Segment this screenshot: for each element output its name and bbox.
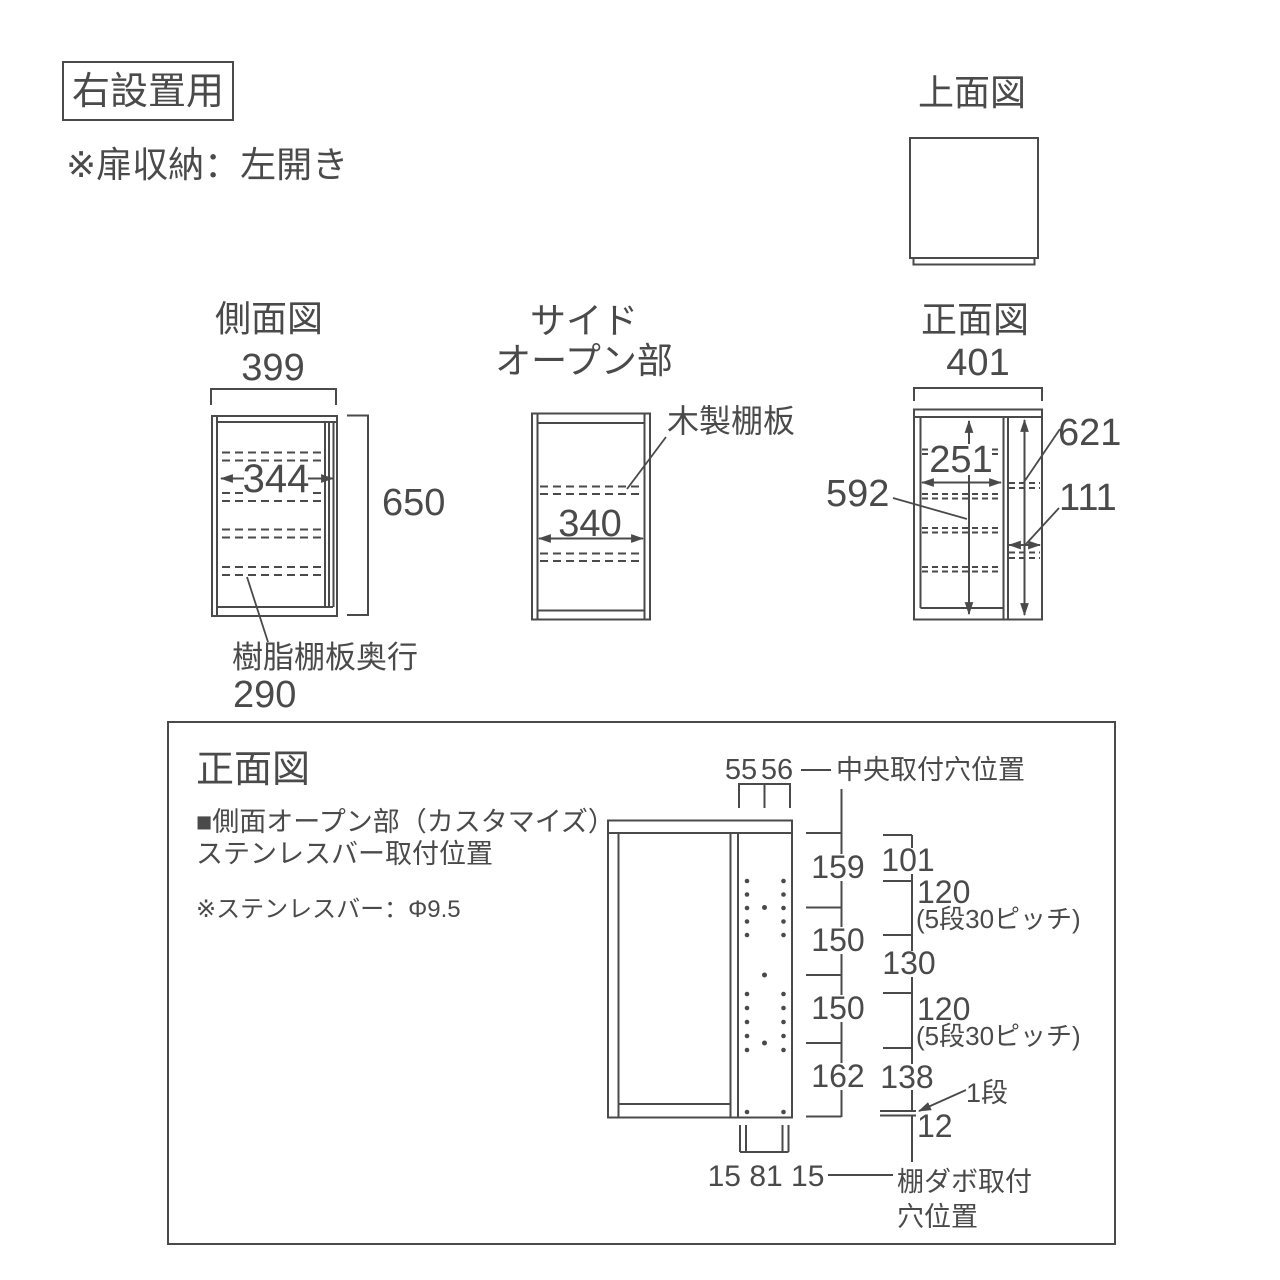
side-open-title-line2: オープン部: [495, 340, 673, 381]
left-chain-dim-3: 150: [811, 990, 864, 1026]
door-open-note: ※扉収納：左開き: [66, 144, 348, 185]
side-open-title-line1: サイド: [530, 300, 638, 341]
top-dims-bracket: [739, 784, 790, 808]
top-view-body: [910, 138, 1038, 258]
wood-shelf-label: 木製棚板: [667, 403, 795, 439]
side-view-panels: [217, 416, 337, 616]
right-chain-dim-4-note: (5段30ピッチ): [916, 1021, 1081, 1051]
right-dim-chain: [880, 835, 916, 1162]
detail-subtitle-line2: ステンレスバー取付位置: [196, 839, 493, 869]
top-dim-left: 55: [725, 754, 757, 786]
side-view: 側面図 399 344 650 樹脂棚板奥行 290: [211, 298, 445, 716]
main-width-dim: 251: [929, 439, 992, 481]
dabo-label-line1: 棚ダボ取付: [897, 1167, 1032, 1197]
side-width-dim: 111: [1059, 477, 1117, 519]
side-open-view: サイド オープン部 340 木製棚板: [495, 300, 795, 620]
detail-title: 正面図: [196, 749, 310, 791]
furniture-dimension-diagram: 右設置用 ※扉収納：左開き 上面図 側面図 399 344 650 樹脂棚板奥行…: [0, 0, 1280, 1280]
diagram-canvas: 右設置用 ※扉収納：左開き 上面図 側面図 399 344 650 樹脂棚板奥行…: [0, 0, 1280, 1280]
side-view-title: 側面図: [215, 298, 323, 339]
main-height-dim: 592: [826, 473, 889, 515]
side-height-dim: 621: [1058, 412, 1121, 454]
step-label: 1段: [966, 1078, 1008, 1108]
bottom-dims: 15 81 15: [708, 1160, 825, 1193]
side-view-height-bracket: [347, 416, 368, 616]
detail-cabinet-body: [608, 821, 792, 1118]
shelf-depth-label: 樹脂棚板奥行: [232, 640, 418, 675]
detail-subtitle-line1: ■側面オープン部（カスタマイズ）: [196, 807, 615, 837]
detail-panel: 正面図 ■側面オープン部（カスタマイズ） ステンレスバー取付位置 ※ステンレスバ…: [168, 722, 1115, 1244]
installation-side-badge: 右設置用: [72, 71, 224, 113]
detail-panel-frame: [168, 722, 1115, 1244]
right-chain-dim-2-note: (5段30ピッチ): [916, 904, 1081, 934]
right-chain-dim-1: 101: [881, 842, 934, 878]
side-view-body: [212, 416, 337, 616]
shelf-depth-value: 290: [233, 674, 296, 716]
front-view: 正面図 401 251 592 621 111: [826, 299, 1121, 620]
left-chain-dim-4: 162: [811, 1058, 864, 1094]
bottom-dims-bracket: [740, 1125, 789, 1152]
wood-shelf-leader: [627, 437, 666, 489]
top-dim-right: 56: [761, 754, 793, 786]
front-view-title: 正面図: [921, 299, 1029, 340]
dabo-label-line2: 穴位置: [897, 1202, 978, 1232]
top-left-legend: 右設置用 ※扉収納：左開き: [63, 62, 348, 185]
side-view-width-bracket: [211, 389, 336, 405]
bar-mount-holes: [745, 879, 786, 1053]
top-view-title: 上面図: [918, 72, 1026, 113]
main-height-leader: [893, 498, 967, 519]
right-chain-dim-6: 12: [917, 1108, 953, 1144]
top-view: 上面図: [910, 72, 1038, 265]
center-hole-label: 中央取付穴位置: [836, 755, 1025, 785]
shelf-depth-leader: [247, 577, 268, 642]
left-chain-dim-1: 159: [811, 849, 864, 885]
top-view-base-strip: [914, 258, 1035, 265]
center-mount-holes: [762, 905, 767, 1046]
right-chain-dim-5: 138: [880, 1059, 933, 1095]
side-view-width-dim: 399: [241, 347, 304, 389]
stainless-bar-note: ※ステンレスバー：Φ9.5: [196, 896, 461, 923]
front-view-width-dim: 401: [946, 342, 1009, 384]
side-view-height-dim: 650: [382, 482, 445, 524]
front-view-width-bracket: [914, 388, 1042, 401]
right-chain-dim-3: 130: [882, 945, 935, 981]
side-view-inner-width-dim: 344: [243, 457, 310, 501]
dabo-holes: [745, 1110, 786, 1115]
left-chain-dim-2: 150: [811, 922, 864, 958]
